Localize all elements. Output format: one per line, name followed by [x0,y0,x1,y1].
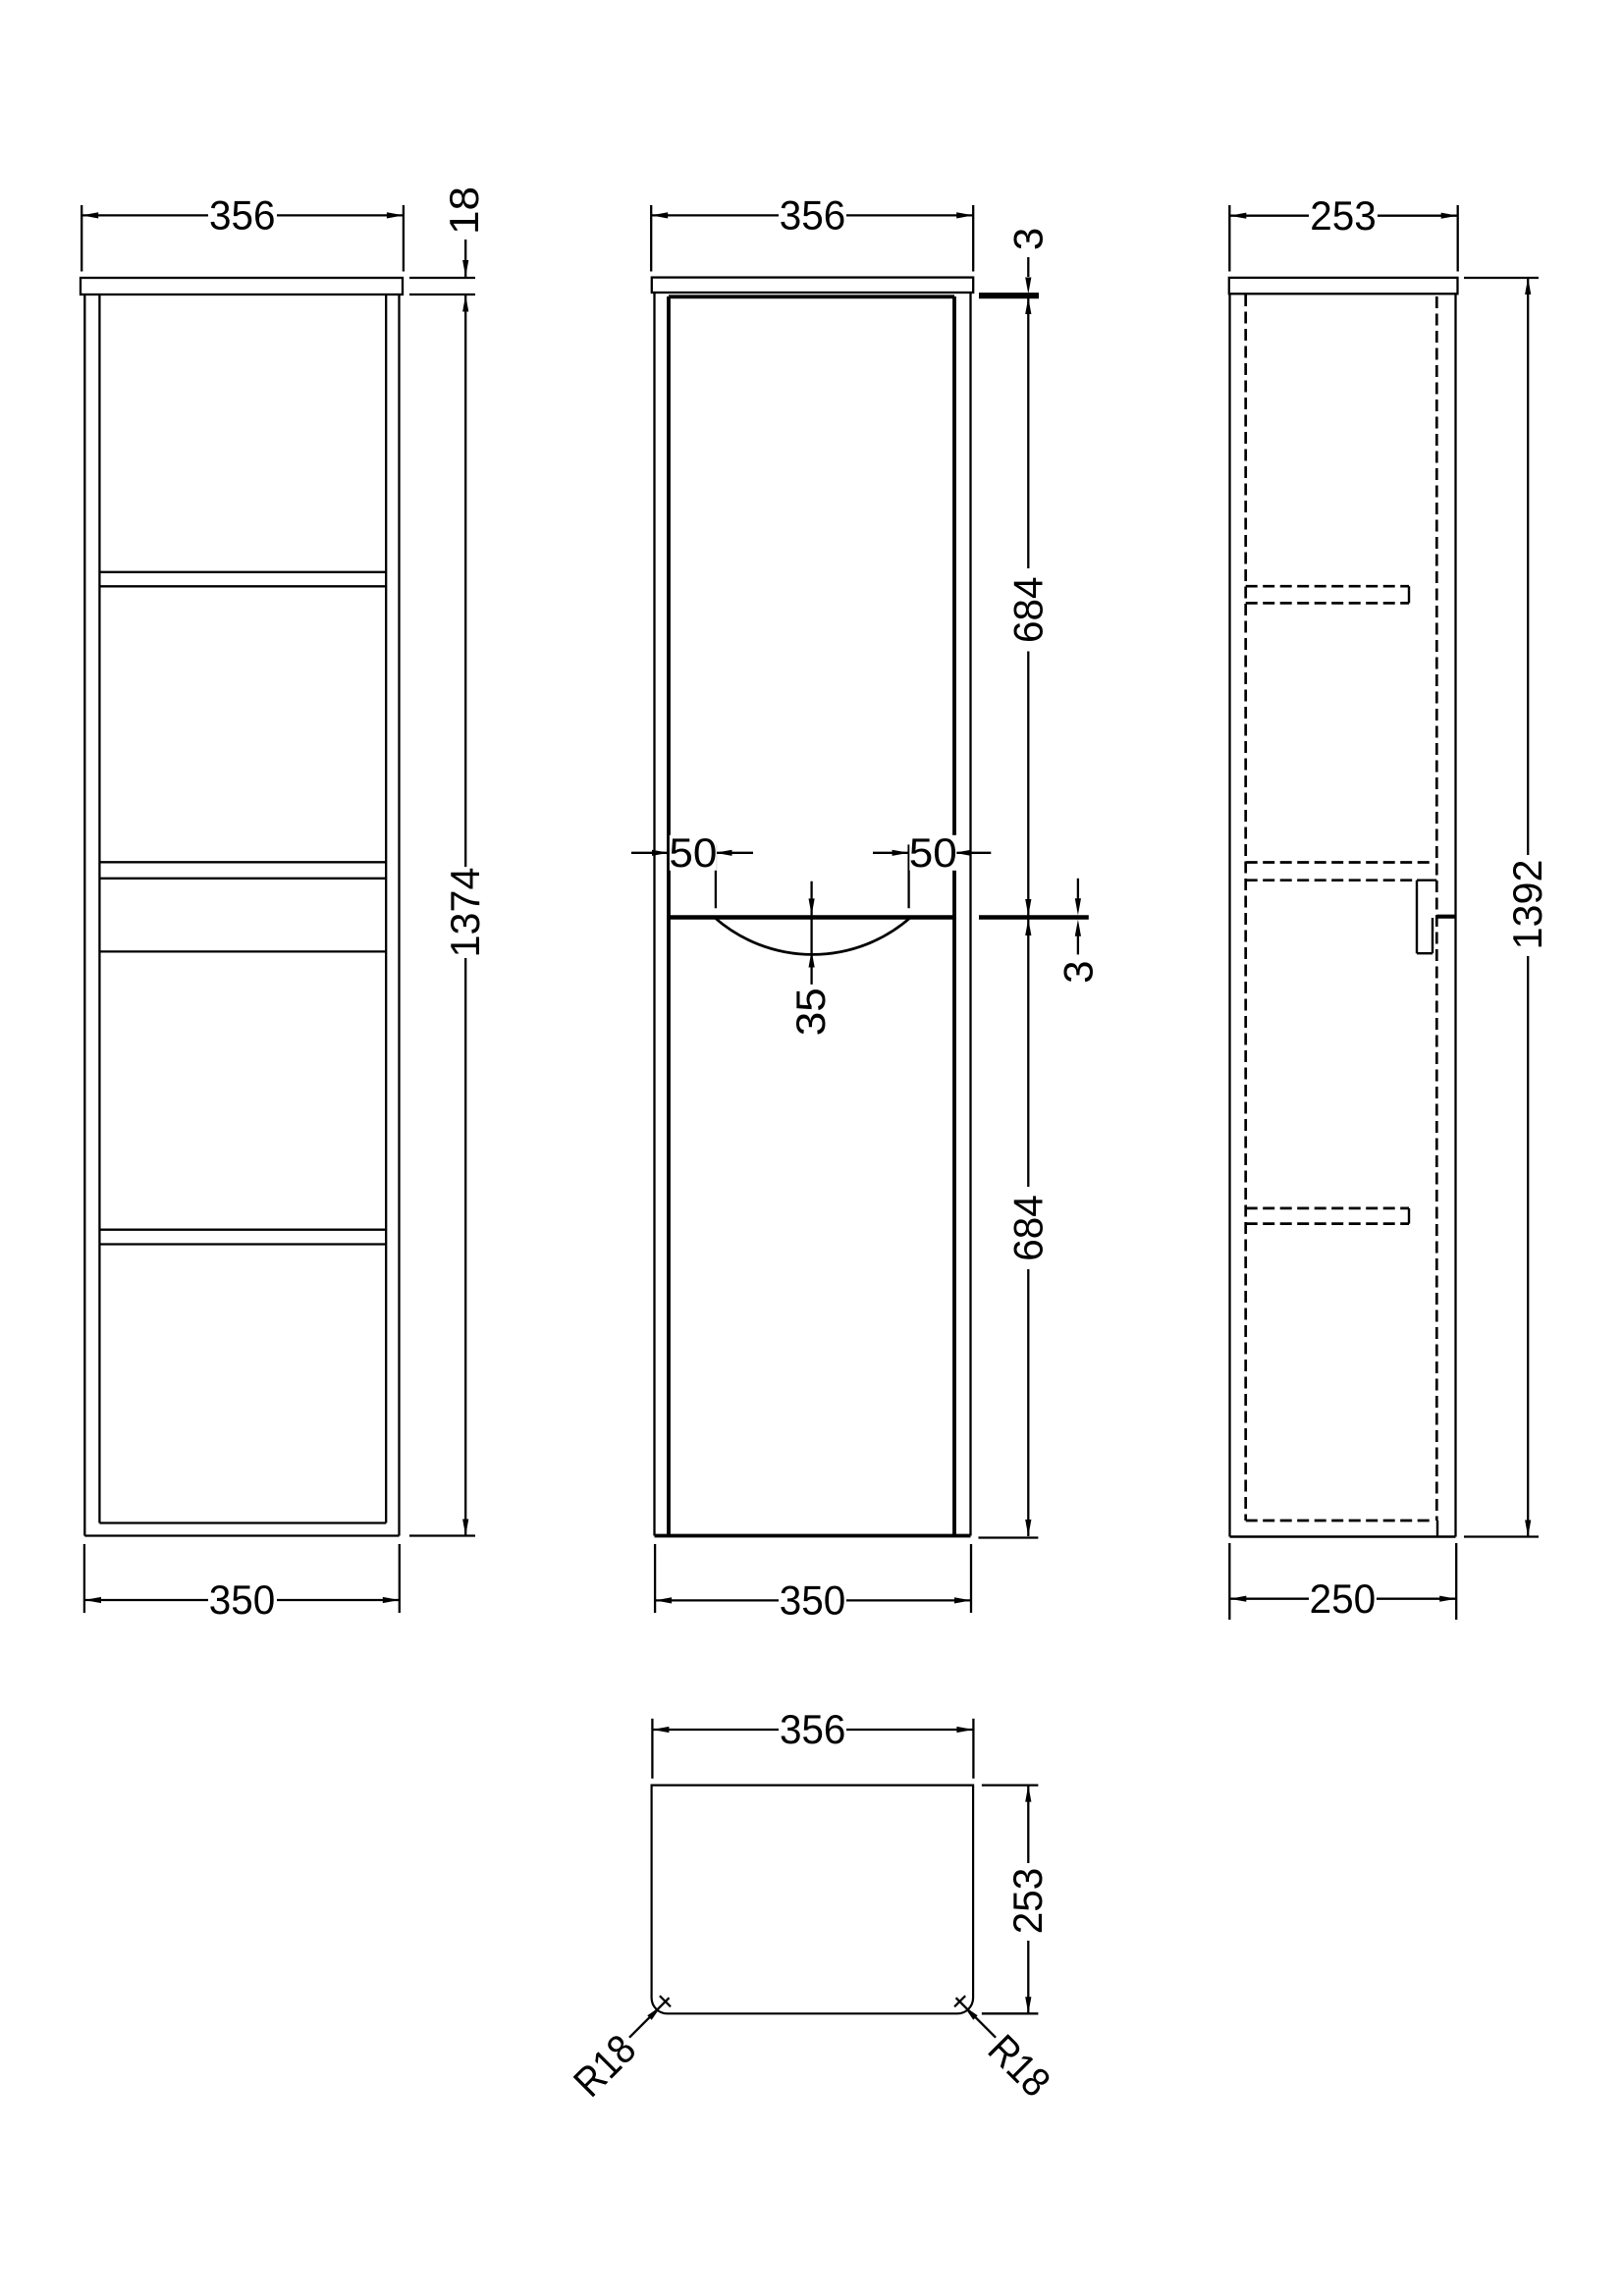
svg-text:253: 253 [1004,1868,1051,1935]
svg-text:684: 684 [1005,1195,1052,1261]
svg-text:35: 35 [787,988,834,1036]
svg-text:18: 18 [441,187,487,235]
svg-text:1374: 1374 [442,868,488,958]
svg-text:3: 3 [1055,961,1101,984]
svg-text:356: 356 [209,192,276,239]
svg-text:684: 684 [1004,577,1051,644]
svg-text:50: 50 [669,829,717,876]
svg-text:1392: 1392 [1504,860,1550,950]
svg-text:350: 350 [209,1576,276,1623]
svg-text:50: 50 [909,829,957,876]
svg-text:356: 356 [780,1706,846,1752]
svg-text:250: 250 [1310,1575,1377,1622]
svg-text:350: 350 [780,1577,846,1624]
svg-text:356: 356 [780,192,846,239]
svg-text:3: 3 [1005,228,1052,250]
svg-text:253: 253 [1310,192,1377,239]
